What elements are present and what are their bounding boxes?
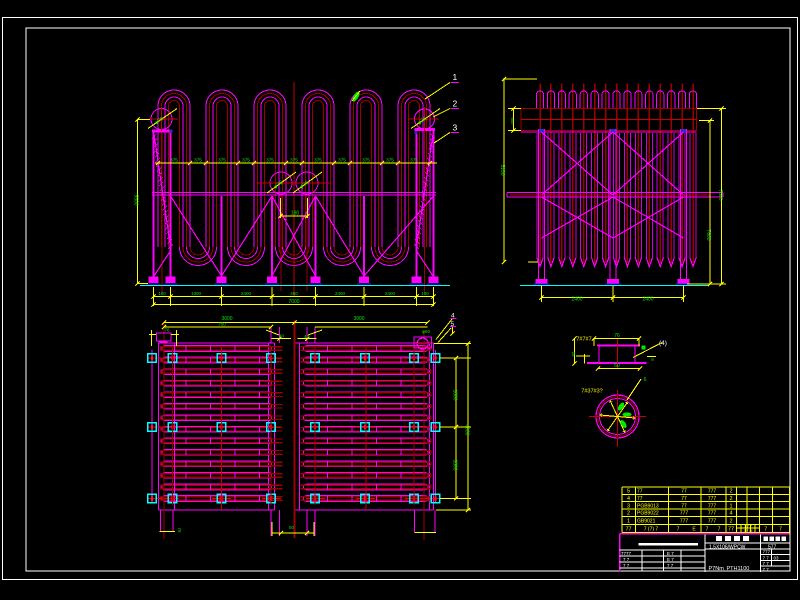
svg-text:180: 180 bbox=[291, 211, 300, 217]
svg-text:7: 7 bbox=[706, 527, 709, 533]
svg-text:4: 4 bbox=[729, 511, 732, 517]
svg-text:375: 375 bbox=[242, 158, 250, 163]
svg-text:7#37#3?: 7#37#3? bbox=[581, 389, 602, 395]
svg-text:77: 77 bbox=[625, 527, 631, 533]
svg-text:7 7: 7 7 bbox=[623, 557, 630, 562]
svg-text:60: 60 bbox=[614, 363, 620, 369]
svg-text:5100: 5100 bbox=[499, 164, 505, 175]
svg-text:375: 375 bbox=[266, 158, 274, 163]
svg-text:3000: 3000 bbox=[353, 316, 364, 322]
svg-text:3: 3 bbox=[453, 123, 458, 133]
svg-text:7: 7 bbox=[779, 527, 782, 533]
svg-text:777: 777 bbox=[708, 489, 717, 495]
svg-text:180: 180 bbox=[421, 291, 429, 296]
svg-text:7: 7 bbox=[718, 527, 721, 533]
svg-text:750: 750 bbox=[218, 322, 226, 327]
svg-text:25: 25 bbox=[571, 351, 576, 357]
svg-text:7600: 7600 bbox=[705, 229, 711, 240]
svg-text:375: 375 bbox=[362, 158, 370, 163]
svg-text:3: 3 bbox=[627, 503, 630, 509]
svg-text:77: 77 bbox=[728, 527, 734, 533]
svg-text:76: 76 bbox=[614, 333, 620, 339]
svg-text:7 7: 7 7 bbox=[763, 567, 770, 572]
svg-text:76: 76 bbox=[177, 527, 182, 533]
svg-text:2400: 2400 bbox=[571, 297, 582, 303]
svg-text:3 7 M: 3 7 M bbox=[744, 529, 753, 533]
svg-text:7000: 7000 bbox=[288, 299, 299, 305]
svg-text:375: 375 bbox=[338, 158, 346, 163]
svg-text:777: 777 bbox=[680, 518, 689, 524]
svg-text:40: 40 bbox=[279, 334, 285, 339]
svg-text:1300: 1300 bbox=[191, 291, 202, 296]
svg-text:1800: 1800 bbox=[452, 459, 458, 470]
svg-text:1: 1 bbox=[729, 503, 732, 509]
svg-text:375: 375 bbox=[290, 158, 298, 163]
svg-text:7: 7 bbox=[764, 527, 767, 533]
svg-text:375: 375 bbox=[314, 158, 322, 163]
svg-text:E 7: E 7 bbox=[667, 557, 674, 562]
svg-text:77: 77 bbox=[681, 489, 687, 495]
svg-text:7 7: 7 7 bbox=[763, 556, 770, 561]
svg-text:600: 600 bbox=[510, 118, 515, 125]
svg-text:375: 375 bbox=[218, 158, 226, 163]
svg-text:2: 2 bbox=[453, 99, 458, 109]
svg-text:180: 180 bbox=[158, 291, 166, 296]
svg-text:(4): (4) bbox=[659, 340, 667, 347]
svg-text:7777: 7777 bbox=[621, 551, 632, 556]
svg-text:5500: 5500 bbox=[133, 194, 139, 205]
svg-text:40: 40 bbox=[304, 334, 310, 339]
svg-text:375: 375 bbox=[410, 158, 418, 163]
svg-text:PTH1100: PTH1100 bbox=[727, 566, 750, 572]
svg-text:GB9021: GB9021 bbox=[637, 518, 656, 524]
svg-text:77: 77 bbox=[681, 496, 687, 502]
svg-text:777: 777 bbox=[763, 550, 771, 555]
svg-text:5: 5 bbox=[627, 489, 630, 495]
svg-text:PGB9013: PGB9013 bbox=[637, 503, 659, 509]
svg-text:777: 777 bbox=[708, 511, 717, 517]
svg-text:777: 777 bbox=[680, 511, 689, 517]
svg-text:777: 777 bbox=[708, 503, 717, 509]
svg-text:7 7: 7 7 bbox=[667, 563, 674, 568]
svg-text:2400: 2400 bbox=[642, 297, 653, 303]
svg-text:7600: 7600 bbox=[717, 189, 723, 200]
svg-text:1: 1 bbox=[453, 72, 458, 82]
svg-text:76: 76 bbox=[164, 328, 170, 333]
svg-text:1.5X106/WPCW: 1.5X106/WPCW bbox=[709, 544, 746, 550]
svg-text:PGB9022: PGB9022 bbox=[637, 511, 659, 517]
svg-text:77: 77 bbox=[637, 489, 643, 495]
svg-text:2: 2 bbox=[627, 511, 630, 517]
svg-text:777: 777 bbox=[708, 518, 717, 524]
svg-text:7: 7 bbox=[677, 527, 680, 533]
svg-text:1: 1 bbox=[627, 518, 630, 524]
svg-text:7 (7) 7: 7 (7) 7 bbox=[644, 527, 659, 533]
svg-text:375: 375 bbox=[386, 158, 394, 163]
svg-text:50: 50 bbox=[289, 525, 295, 530]
svg-text:1800: 1800 bbox=[452, 389, 458, 400]
svg-text:6: 6 bbox=[644, 377, 647, 383]
svg-text:375: 375 bbox=[170, 158, 178, 163]
svg-text:2400: 2400 bbox=[335, 291, 346, 296]
svg-text:7 7: 7 7 bbox=[763, 561, 770, 566]
svg-text:2400: 2400 bbox=[241, 291, 252, 296]
svg-text:φ60: φ60 bbox=[422, 329, 430, 334]
svg-text:03: 03 bbox=[774, 556, 780, 561]
svg-text:777: 777 bbox=[708, 496, 717, 502]
svg-text:77: 77 bbox=[637, 496, 643, 502]
svg-text:7 7: 7 7 bbox=[623, 563, 630, 568]
svg-text:450: 450 bbox=[290, 291, 298, 296]
svg-text:4: 4 bbox=[627, 496, 630, 502]
svg-text:E 7: E 7 bbox=[667, 551, 674, 556]
svg-text:77: 77 bbox=[681, 503, 687, 509]
svg-text:7#7#7: 7#7#7 bbox=[576, 337, 591, 343]
svg-text:4000: 4000 bbox=[464, 424, 470, 435]
svg-text:375: 375 bbox=[194, 158, 202, 163]
svg-text:2: 2 bbox=[729, 518, 732, 524]
svg-text:2400: 2400 bbox=[385, 291, 396, 296]
svg-text:P7Nm: P7Nm bbox=[709, 566, 725, 572]
svg-text:2: 2 bbox=[729, 496, 732, 502]
svg-text:2: 2 bbox=[729, 489, 732, 495]
